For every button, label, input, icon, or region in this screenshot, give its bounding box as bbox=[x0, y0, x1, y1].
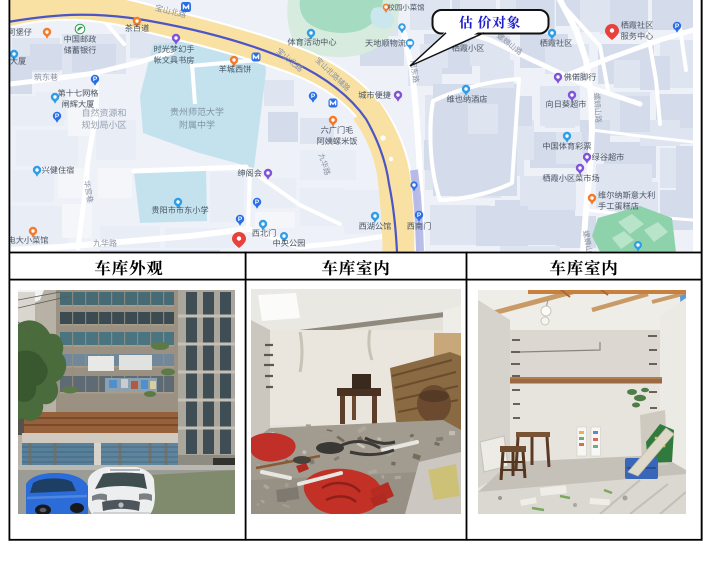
svg-text:贵阳市市东小学: 贵阳市市东小学 bbox=[151, 204, 208, 216]
svg-text:阿堡仔: 阿堡仔 bbox=[7, 26, 32, 38]
svg-text:电大小菜馆: 电大小菜馆 bbox=[8, 234, 49, 246]
svg-text:帐文具书房: 帐文具书房 bbox=[154, 54, 195, 66]
svg-text:估 价对象: 估 价对象 bbox=[459, 13, 521, 33]
svg-text:车库室内: 车库室内 bbox=[321, 255, 390, 279]
svg-text:附属中学: 附属中学 bbox=[179, 118, 215, 131]
svg-text:九华路: 九华路 bbox=[93, 238, 117, 249]
svg-text:P: P bbox=[255, 197, 260, 206]
svg-text:P: P bbox=[55, 111, 60, 120]
svg-text:西湖公馆: 西湖公馆 bbox=[359, 220, 392, 232]
svg-text:大厦: 大厦 bbox=[10, 55, 26, 67]
svg-text:贵州师范大学: 贵州师范大学 bbox=[170, 105, 224, 118]
svg-text:天地顺物流: 天地顺物流 bbox=[365, 37, 406, 49]
svg-text:手工蛋糕店: 手工蛋糕店 bbox=[598, 200, 639, 212]
svg-text:校园小菜馆: 校园小菜馆 bbox=[388, 2, 425, 13]
svg-text:车库室内: 车库室内 bbox=[549, 255, 618, 279]
svg-text:闸辉大厦: 闸辉大厦 bbox=[62, 98, 95, 110]
svg-text:P: P bbox=[311, 91, 316, 100]
svg-text:体育活动中心: 体育活动中心 bbox=[287, 36, 336, 48]
svg-text:中央公园: 中央公园 bbox=[273, 237, 306, 249]
svg-text:向日葵超市: 向日葵超市 bbox=[546, 98, 587, 110]
svg-text:兴健住宿: 兴健住宿 bbox=[42, 164, 75, 176]
svg-text:服务中心: 服务中心 bbox=[621, 30, 654, 42]
svg-text:城市便捷: 城市便捷 bbox=[358, 89, 391, 101]
svg-text:茶百道: 茶百道 bbox=[125, 22, 150, 34]
svg-text:车库外观: 车库外观 bbox=[94, 255, 163, 279]
svg-text:阿姨螺米饭: 阿姨螺米饭 bbox=[317, 135, 358, 147]
svg-text:储蓄银行: 储蓄银行 bbox=[64, 44, 97, 56]
svg-text:栖霞社区: 栖霞社区 bbox=[540, 37, 573, 49]
svg-text:P: P bbox=[93, 74, 98, 83]
svg-text:佛偌脚行: 佛偌脚行 bbox=[564, 71, 597, 83]
svg-text:维也纳酒店: 维也纳酒店 bbox=[447, 93, 488, 105]
svg-text:规划局小区: 规划局小区 bbox=[81, 118, 126, 131]
svg-text:螺蛳山路: 螺蛳山路 bbox=[591, 92, 604, 123]
svg-text:P: P bbox=[675, 21, 680, 30]
svg-text:绅阁会: 绅阁会 bbox=[237, 167, 262, 179]
svg-text:羊城西饼: 羊城西饼 bbox=[219, 63, 252, 75]
svg-text:P: P bbox=[417, 210, 422, 219]
svg-text:筑东巷: 筑东巷 bbox=[34, 72, 58, 83]
svg-text:西南门: 西南门 bbox=[407, 220, 432, 232]
svg-text:绿谷超市: 绿谷超市 bbox=[592, 151, 625, 163]
svg-text:P: P bbox=[238, 214, 243, 223]
svg-text:中国体育彩票: 中国体育彩票 bbox=[542, 140, 591, 152]
svg-text:栖霞小区菜市场: 栖霞小区菜市场 bbox=[542, 172, 599, 184]
